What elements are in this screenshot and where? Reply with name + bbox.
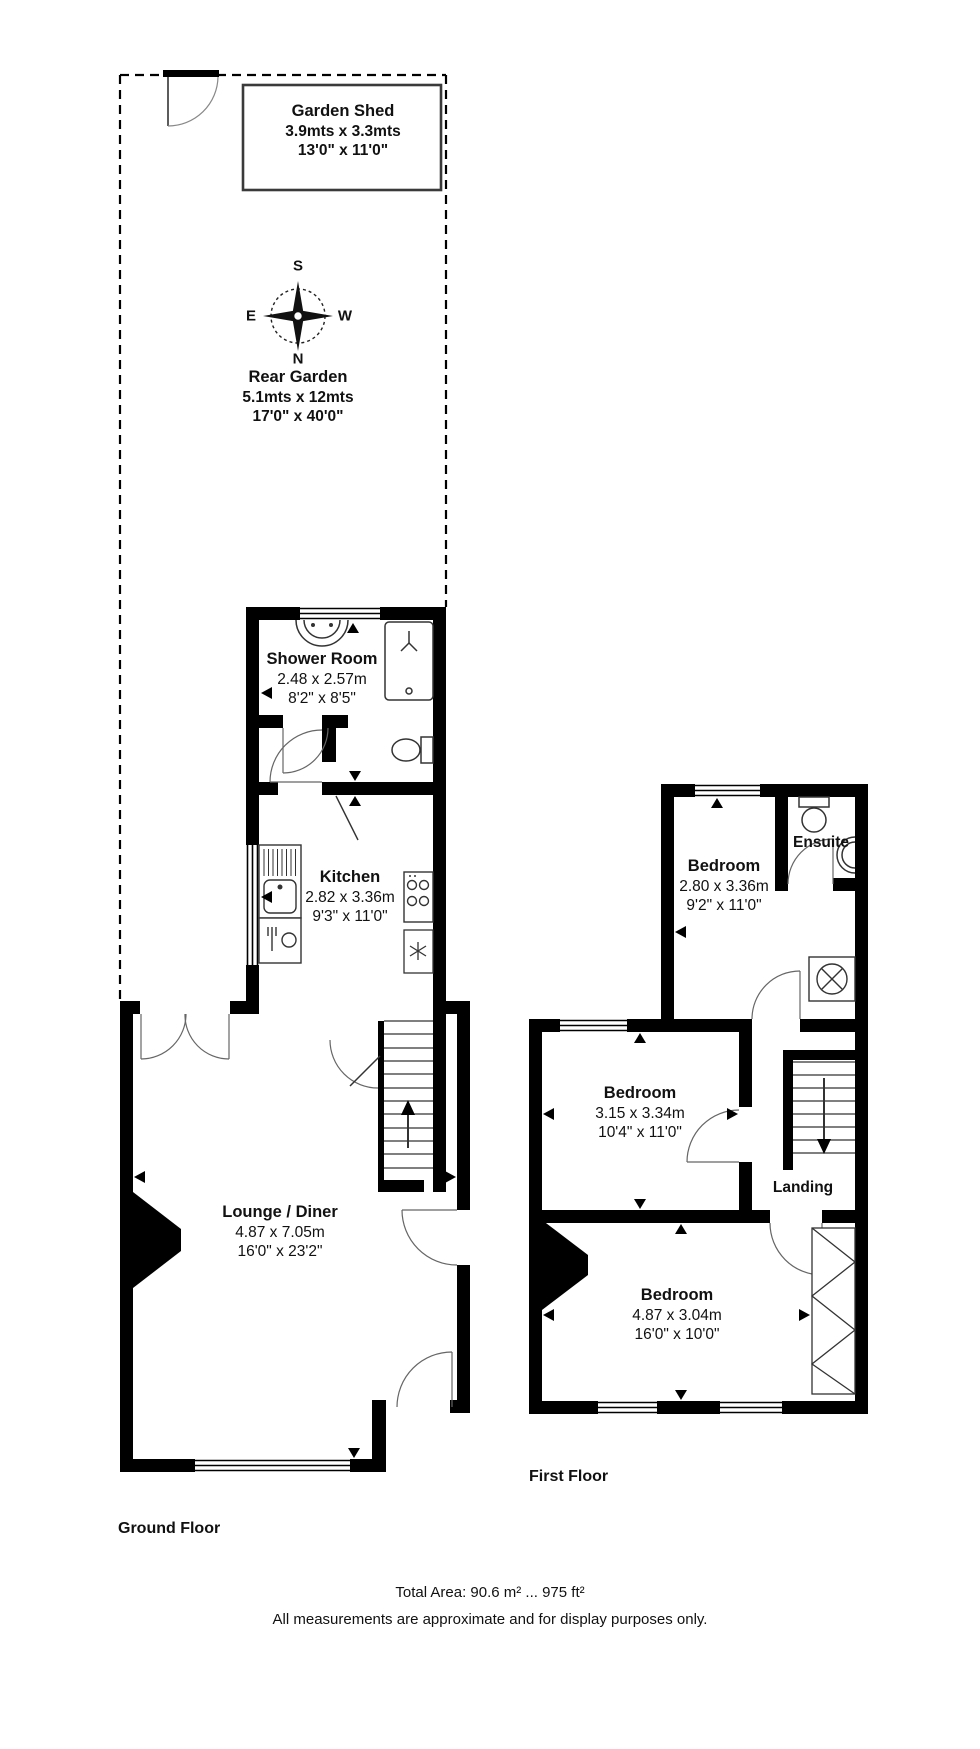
rear-garden-name: Rear Garden: [242, 368, 353, 388]
shower-enclosure-icon: [385, 622, 433, 700]
floorplan-page: S E W N Garden Shed 3.9mts x 3.3mts 13'0…: [0, 0, 980, 1749]
compass-icon: [263, 281, 333, 351]
compass-east-label: E: [246, 308, 256, 325]
bedroom3-imperial: 16'0" x 10'0": [632, 1325, 722, 1345]
shower-room-name: Shower Room: [267, 650, 378, 670]
rear-garden-imperial: 17'0" x 40'0": [242, 407, 353, 427]
lounge-name: Lounge / Diner: [222, 1203, 338, 1223]
bedroom1-imperial: 9'2" x 11'0": [679, 896, 769, 916]
disclaimer-text: All measurements are approximate and for…: [0, 1611, 980, 1628]
shower-room-label: Shower Room 2.48 x 2.57m 8'2" x 8'5": [267, 650, 378, 709]
lounge-imperial: 16'0" x 23'2": [222, 1242, 338, 1262]
shower-room-metric: 2.48 x 2.57m: [267, 670, 378, 690]
bedroom1-name: Bedroom: [679, 857, 769, 877]
stove-icon: [404, 872, 433, 922]
freezer-icon: [404, 930, 433, 973]
bedroom1-metric: 2.80 x 3.36m: [679, 877, 769, 897]
total-area-text: Total Area: 90.6 m² ... 975 ft²: [0, 1584, 980, 1601]
kitchen-name: Kitchen: [305, 868, 395, 888]
bedroom2-imperial: 10'4" x 11'0": [595, 1123, 685, 1143]
shed-imperial: 13'0" x 11'0": [285, 141, 400, 161]
ensuite-label: Ensuite: [793, 834, 849, 852]
toilet-icon: [392, 737, 433, 763]
kitchen-metric: 2.82 x 3.36m: [305, 888, 395, 908]
dishwasher-icon: [259, 918, 301, 963]
shower-room-imperial: 8'2" x 8'5": [267, 689, 378, 709]
stair-cut-line: [350, 1056, 380, 1086]
compass-north-label: N: [293, 351, 304, 368]
bedroom3-label: Bedroom 4.87 x 3.04m 16'0" x 10'0": [632, 1286, 722, 1345]
bedroom3-name: Bedroom: [632, 1286, 722, 1306]
ensuite-toilet-icon: [799, 797, 829, 832]
lounge-metric: 4.87 x 7.05m: [222, 1223, 338, 1243]
compass-west-label: W: [338, 308, 352, 325]
garden-gate-icon: [163, 70, 219, 126]
ground-floor-windows: [195, 607, 380, 1472]
first-floor-label: First Floor: [529, 1468, 608, 1486]
shed-metric: 3.9mts x 3.3mts: [285, 122, 400, 142]
floorplan-graphics: [0, 0, 980, 1749]
shed-name: Garden Shed: [285, 102, 400, 122]
stairs-down-icon: [793, 1062, 855, 1154]
shed-label: Garden Shed 3.9mts x 3.3mts 13'0" x 11'0…: [285, 102, 400, 161]
bedroom1-label: Bedroom 2.80 x 3.36m 9'2" x 11'0": [679, 857, 769, 916]
kitchen-sink-icon: [259, 845, 301, 918]
extractor-fan-icon: [809, 957, 855, 1001]
shower-sink-icon: [296, 620, 348, 646]
ground-floor-doors: [141, 728, 457, 1407]
bedroom3-metric: 4.87 x 3.04m: [632, 1306, 722, 1326]
compass-south-label: S: [293, 258, 303, 275]
kitchen-label: Kitchen 2.82 x 3.36m 9'3" x 11'0": [305, 868, 395, 927]
chimney-breast: [133, 1192, 181, 1288]
landing-label: Landing: [773, 1179, 833, 1197]
kitchen-imperial: 9'3" x 11'0": [305, 907, 395, 927]
ground-floor-label: Ground Floor: [118, 1520, 220, 1538]
rear-garden-label: Rear Garden 5.1mts x 12mts 17'0" x 40'0": [242, 368, 353, 427]
lounge-label: Lounge / Diner 4.87 x 7.05m 16'0" x 23'2…: [222, 1203, 338, 1262]
bedroom2-metric: 3.15 x 3.34m: [595, 1104, 685, 1124]
chimney-breast-first-floor: [542, 1220, 588, 1310]
rear-garden-metric: 5.1mts x 12mts: [242, 388, 353, 408]
stairs-up-icon: [384, 1021, 433, 1168]
wardrobe-icon: [812, 1228, 855, 1394]
bedroom2-label: Bedroom 3.15 x 3.34m 10'4" x 11'0": [595, 1084, 685, 1143]
bedroom2-name: Bedroom: [595, 1084, 685, 1104]
